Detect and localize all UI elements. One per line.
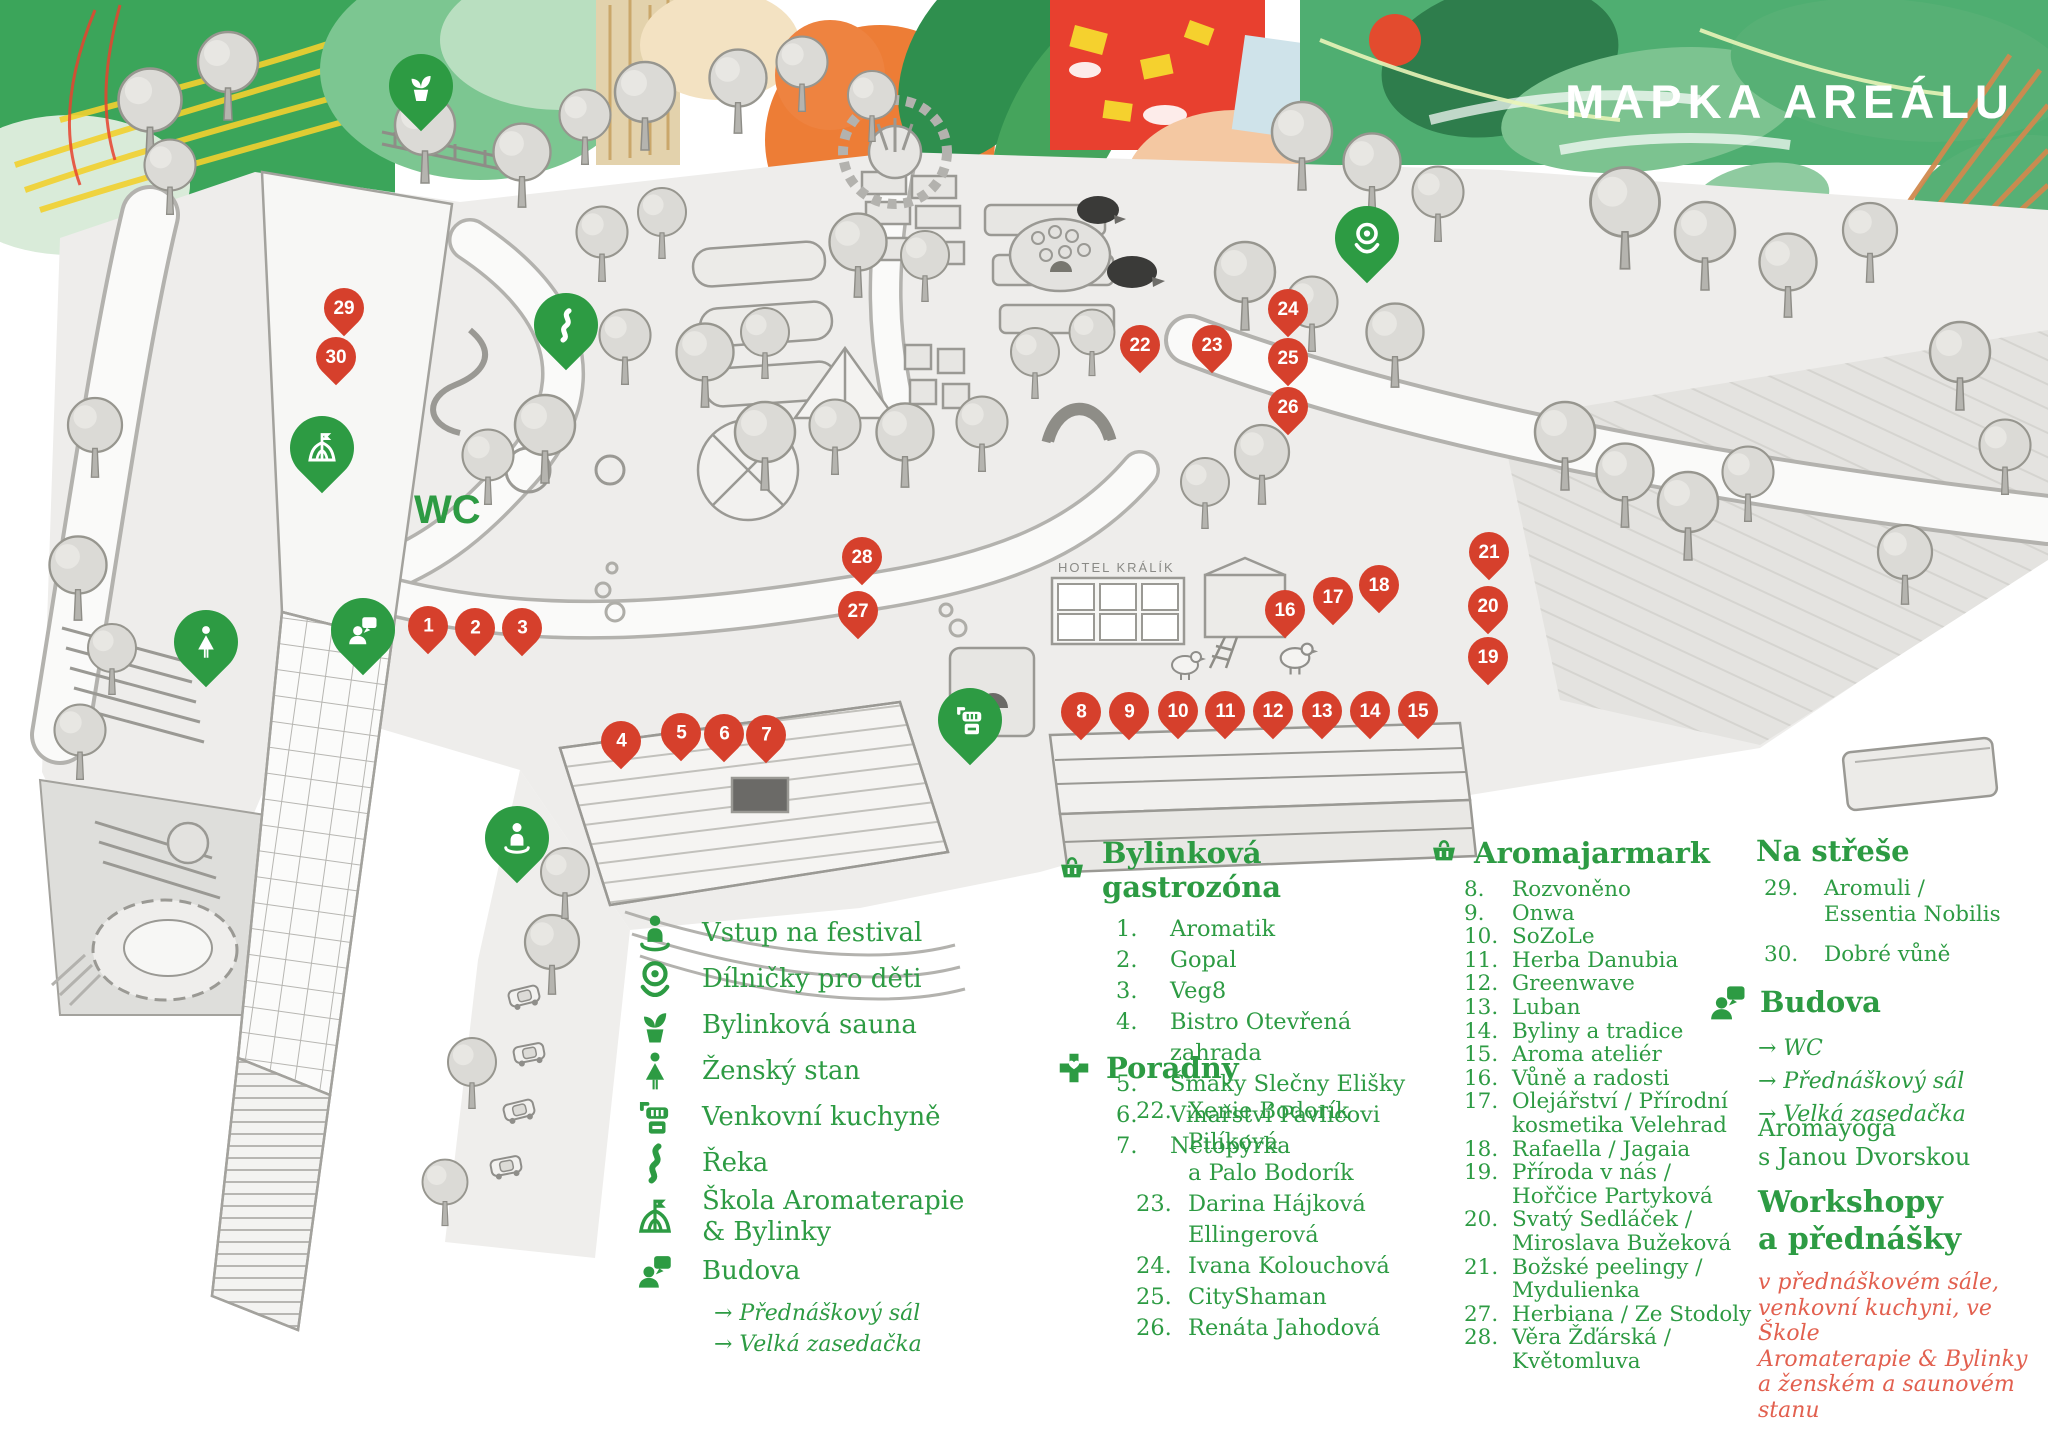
list-item: 27.Herbiana / Ze Stodoly [1464, 1303, 1758, 1327]
river-icon [632, 1140, 678, 1186]
roof-list: 29.Aromuli / Essentia Nobilis30.Dobré vů… [1764, 876, 2046, 968]
kids-icon [632, 956, 678, 1002]
hotel-kralik-label: HOTEL KRÁLÍK [1058, 560, 1175, 575]
section-title: Budova [1760, 985, 1881, 1019]
section-workshopy: Workshopy a přednášky v přednáškovém sál… [1758, 1184, 2048, 1423]
river-icon [548, 307, 584, 343]
budova-sublist: → Přednáškový sál→ Velká zasedačka [714, 1298, 982, 1360]
list-item: 2.Gopal [1116, 945, 1416, 976]
list-item: 29.Aromuli / Essentia Nobilis [1764, 876, 2046, 928]
section-poradny: Poradny 22.Xenie Bodorík Pilíková a Palo… [1056, 1050, 1426, 1344]
budova-subitem: → Velká zasedačka [714, 1329, 982, 1360]
basket-icon [1428, 837, 1460, 869]
legend-entrance: Vstup na festival [632, 910, 982, 956]
workshops-note: v přednáškovém sále, venkovní kuchyni, v… [1758, 1270, 2048, 1423]
legend-label: Budova [702, 1256, 800, 1287]
list-item: 23.Darina Hájková Ellingerová [1136, 1189, 1426, 1251]
legend-kids: Dílničky pro děti [632, 956, 982, 1002]
woman-icon [632, 1048, 678, 1094]
list-item: 1.Aromatik [1116, 914, 1416, 945]
list-item: 30.Dobré vůně [1764, 942, 2046, 968]
list-item: 21.Božské peelingy / Mydulienka [1464, 1256, 1758, 1303]
legend-label: Venkovní kuchyně [702, 1102, 941, 1133]
poradny-list: 22.Xenie Bodorík Pilíková a Palo Bodorík… [1136, 1096, 1426, 1344]
legend-woman: Ženský stan [632, 1048, 982, 1094]
legend-kitchen: Venkovní kuchyně [632, 1094, 982, 1140]
list-item: 22.Xenie Bodorík Pilíková a Palo Bodorík [1136, 1096, 1426, 1189]
kitchen-cart-icon [952, 702, 988, 738]
speech-person-icon [1706, 980, 1750, 1024]
plant-icon [632, 1002, 678, 1048]
section-title: Na střeše [1756, 834, 1910, 868]
aromayoga-note: Aromayoga s Janou Dvorskou [1758, 1114, 1970, 1172]
legend-label: Ženský stan [702, 1056, 860, 1087]
legend-river: Řeka [632, 1140, 982, 1186]
icon-legend: Vstup na festival Dílničky pro děti Byli… [632, 910, 982, 1360]
section-na-strese: Na střeše 29.Aromuli / Essentia Nobilis3… [1756, 834, 2046, 982]
section-budova: Budova → WC→ Přednáškový sál→ Velká zase… [1706, 980, 2026, 1131]
list-item: 8.Rozvoněno [1464, 878, 1758, 902]
wc-label: WC [414, 488, 481, 533]
section-title: Workshopy a přednášky [1758, 1184, 2048, 1258]
list-item: 26.Renáta Jahodová [1136, 1313, 1426, 1344]
section-header: Poradny [1056, 1050, 1426, 1086]
kids-icon [1349, 220, 1385, 256]
list-item: 24.Ivana Kolouchová [1136, 1251, 1426, 1282]
section-header: Bylinková gastrozóna [1056, 836, 1416, 904]
page-title: MAPKA AREÁLU [1560, 74, 2020, 129]
list-item: 28.Věra Žďárská / Květomluva [1464, 1326, 1758, 1373]
legend-label: Škola Aromaterapie & Bylinky [702, 1186, 964, 1248]
legend-sauna: Bylinková sauna [632, 1002, 982, 1048]
cross-heart-icon [1056, 1050, 1092, 1086]
tent-icon [632, 1194, 678, 1240]
legend-label: Řeka [702, 1148, 768, 1179]
list-item: 10.SoZoLe [1464, 925, 1758, 949]
legend-label: Bylinková sauna [702, 1010, 917, 1041]
budova-line: → Přednáškový sál [1758, 1065, 2026, 1098]
list-item: 3.Veg8 [1116, 976, 1416, 1007]
legend-label: Dílničky pro děti [702, 964, 922, 995]
legend-school: Škola Aromaterapie & Bylinky [632, 1186, 982, 1248]
list-item: 9.Onwa [1464, 902, 1758, 926]
festival-map-poster: MAPKA AREÁLU [0, 0, 2048, 1453]
budova-subitem: → Přednáškový sál [714, 1298, 982, 1329]
section-header: Aromajarmark [1428, 836, 1758, 870]
list-item: 18.Rafaella / Jagaia [1464, 1138, 1758, 1162]
section-title: Bylinková gastrozóna [1102, 836, 1416, 904]
entrance-person-icon [499, 820, 535, 856]
section-header: Budova [1706, 980, 2026, 1024]
section-title: Poradny [1106, 1051, 1239, 1085]
legend-label: Vstup na festival [702, 918, 922, 949]
stone-dome [1010, 219, 1110, 291]
entrance-person-icon [632, 910, 678, 956]
list-item: 11.Herba Danubia [1464, 949, 1758, 973]
plant-icon [403, 68, 439, 104]
budova-line: → WC [1758, 1032, 2026, 1065]
tent-icon [304, 430, 340, 466]
speech-person-icon [345, 612, 381, 648]
basket-icon [1056, 854, 1088, 886]
legend-building: Budova [632, 1248, 982, 1294]
speech-person-icon [632, 1248, 678, 1294]
section-header: Na střeše [1756, 834, 2046, 868]
list-item: 19.Příroda v nás / Hořčice Partyková [1464, 1161, 1758, 1208]
list-item: 20.Svatý Sedláček / Miroslava Bužeková [1464, 1208, 1758, 1255]
right-planter [1842, 737, 1997, 810]
woman-icon [188, 624, 224, 660]
kitchen-cart-icon [632, 1094, 678, 1140]
section-title: Aromajarmark [1474, 836, 1710, 870]
list-item: 25.CityShaman [1136, 1282, 1426, 1313]
